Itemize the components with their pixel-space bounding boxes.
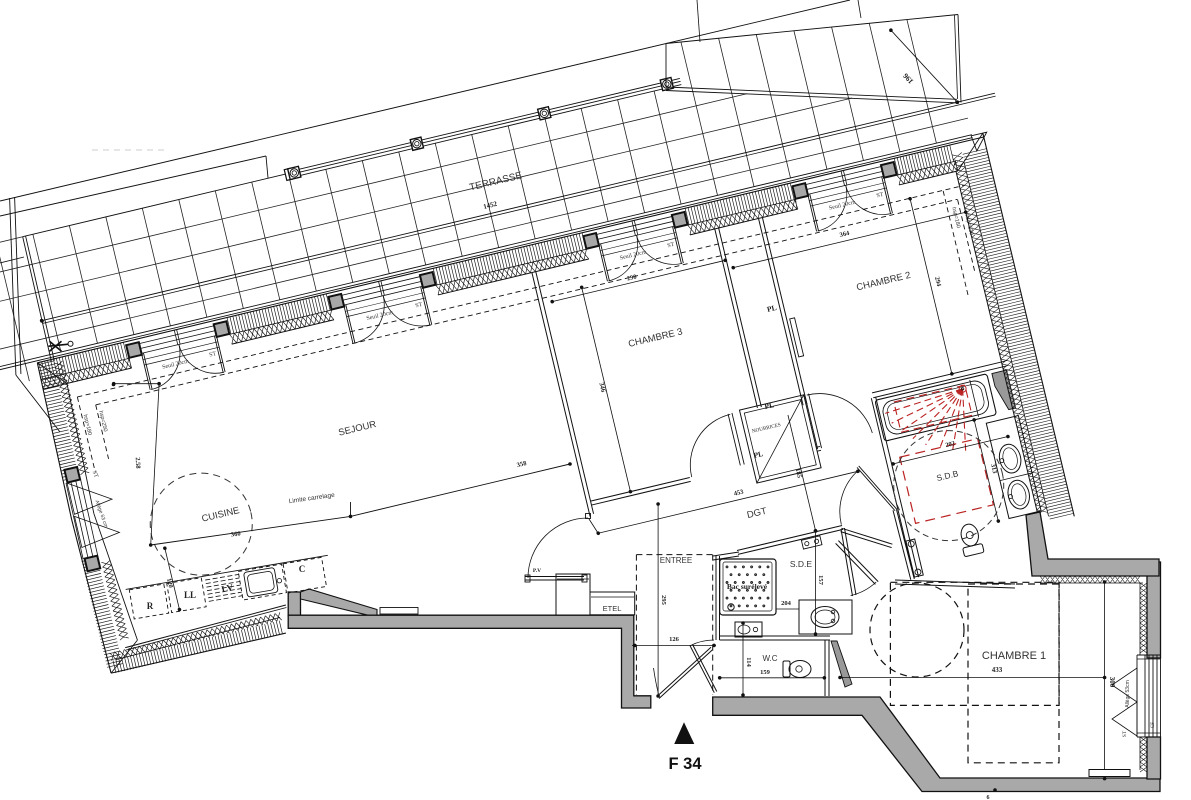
svg-text:ENTREE: ENTREE [660, 556, 692, 565]
svg-text:W.C: W.C [762, 654, 777, 663]
svg-text:ST: ST [1122, 730, 1128, 737]
svg-text:433: 433 [992, 666, 1003, 674]
svg-text:ETEL: ETEL [603, 604, 622, 613]
svg-text:CF: CF [1151, 722, 1156, 728]
svg-text:6: 6 [987, 795, 990, 800]
svg-text:F 34: F 34 [668, 755, 702, 773]
svg-text:204: 204 [781, 600, 792, 607]
svg-text:S.D.E: S.D.E [790, 559, 813, 569]
svg-text:LL: LL [184, 590, 196, 600]
svg-text:2.58: 2.58 [134, 457, 141, 469]
svg-text:Allège 53cm: Allège 53cm [1125, 680, 1131, 708]
svg-text:126: 126 [669, 636, 680, 643]
svg-text:R: R [147, 601, 154, 611]
svg-text:157: 157 [817, 575, 824, 586]
svg-text:300: 300 [1108, 677, 1116, 688]
svg-text:295: 295 [660, 595, 667, 606]
svg-text:114: 114 [745, 657, 752, 667]
svg-text:Bac surélevé: Bac surélevé [727, 582, 768, 591]
svg-text:P.V: P.V [533, 568, 541, 574]
svg-text:360: 360 [230, 530, 241, 538]
svg-text:CHAMBRE 1: CHAMBRE 1 [982, 650, 1046, 662]
svg-text:159: 159 [760, 669, 771, 676]
svg-text:C: C [299, 564, 306, 574]
